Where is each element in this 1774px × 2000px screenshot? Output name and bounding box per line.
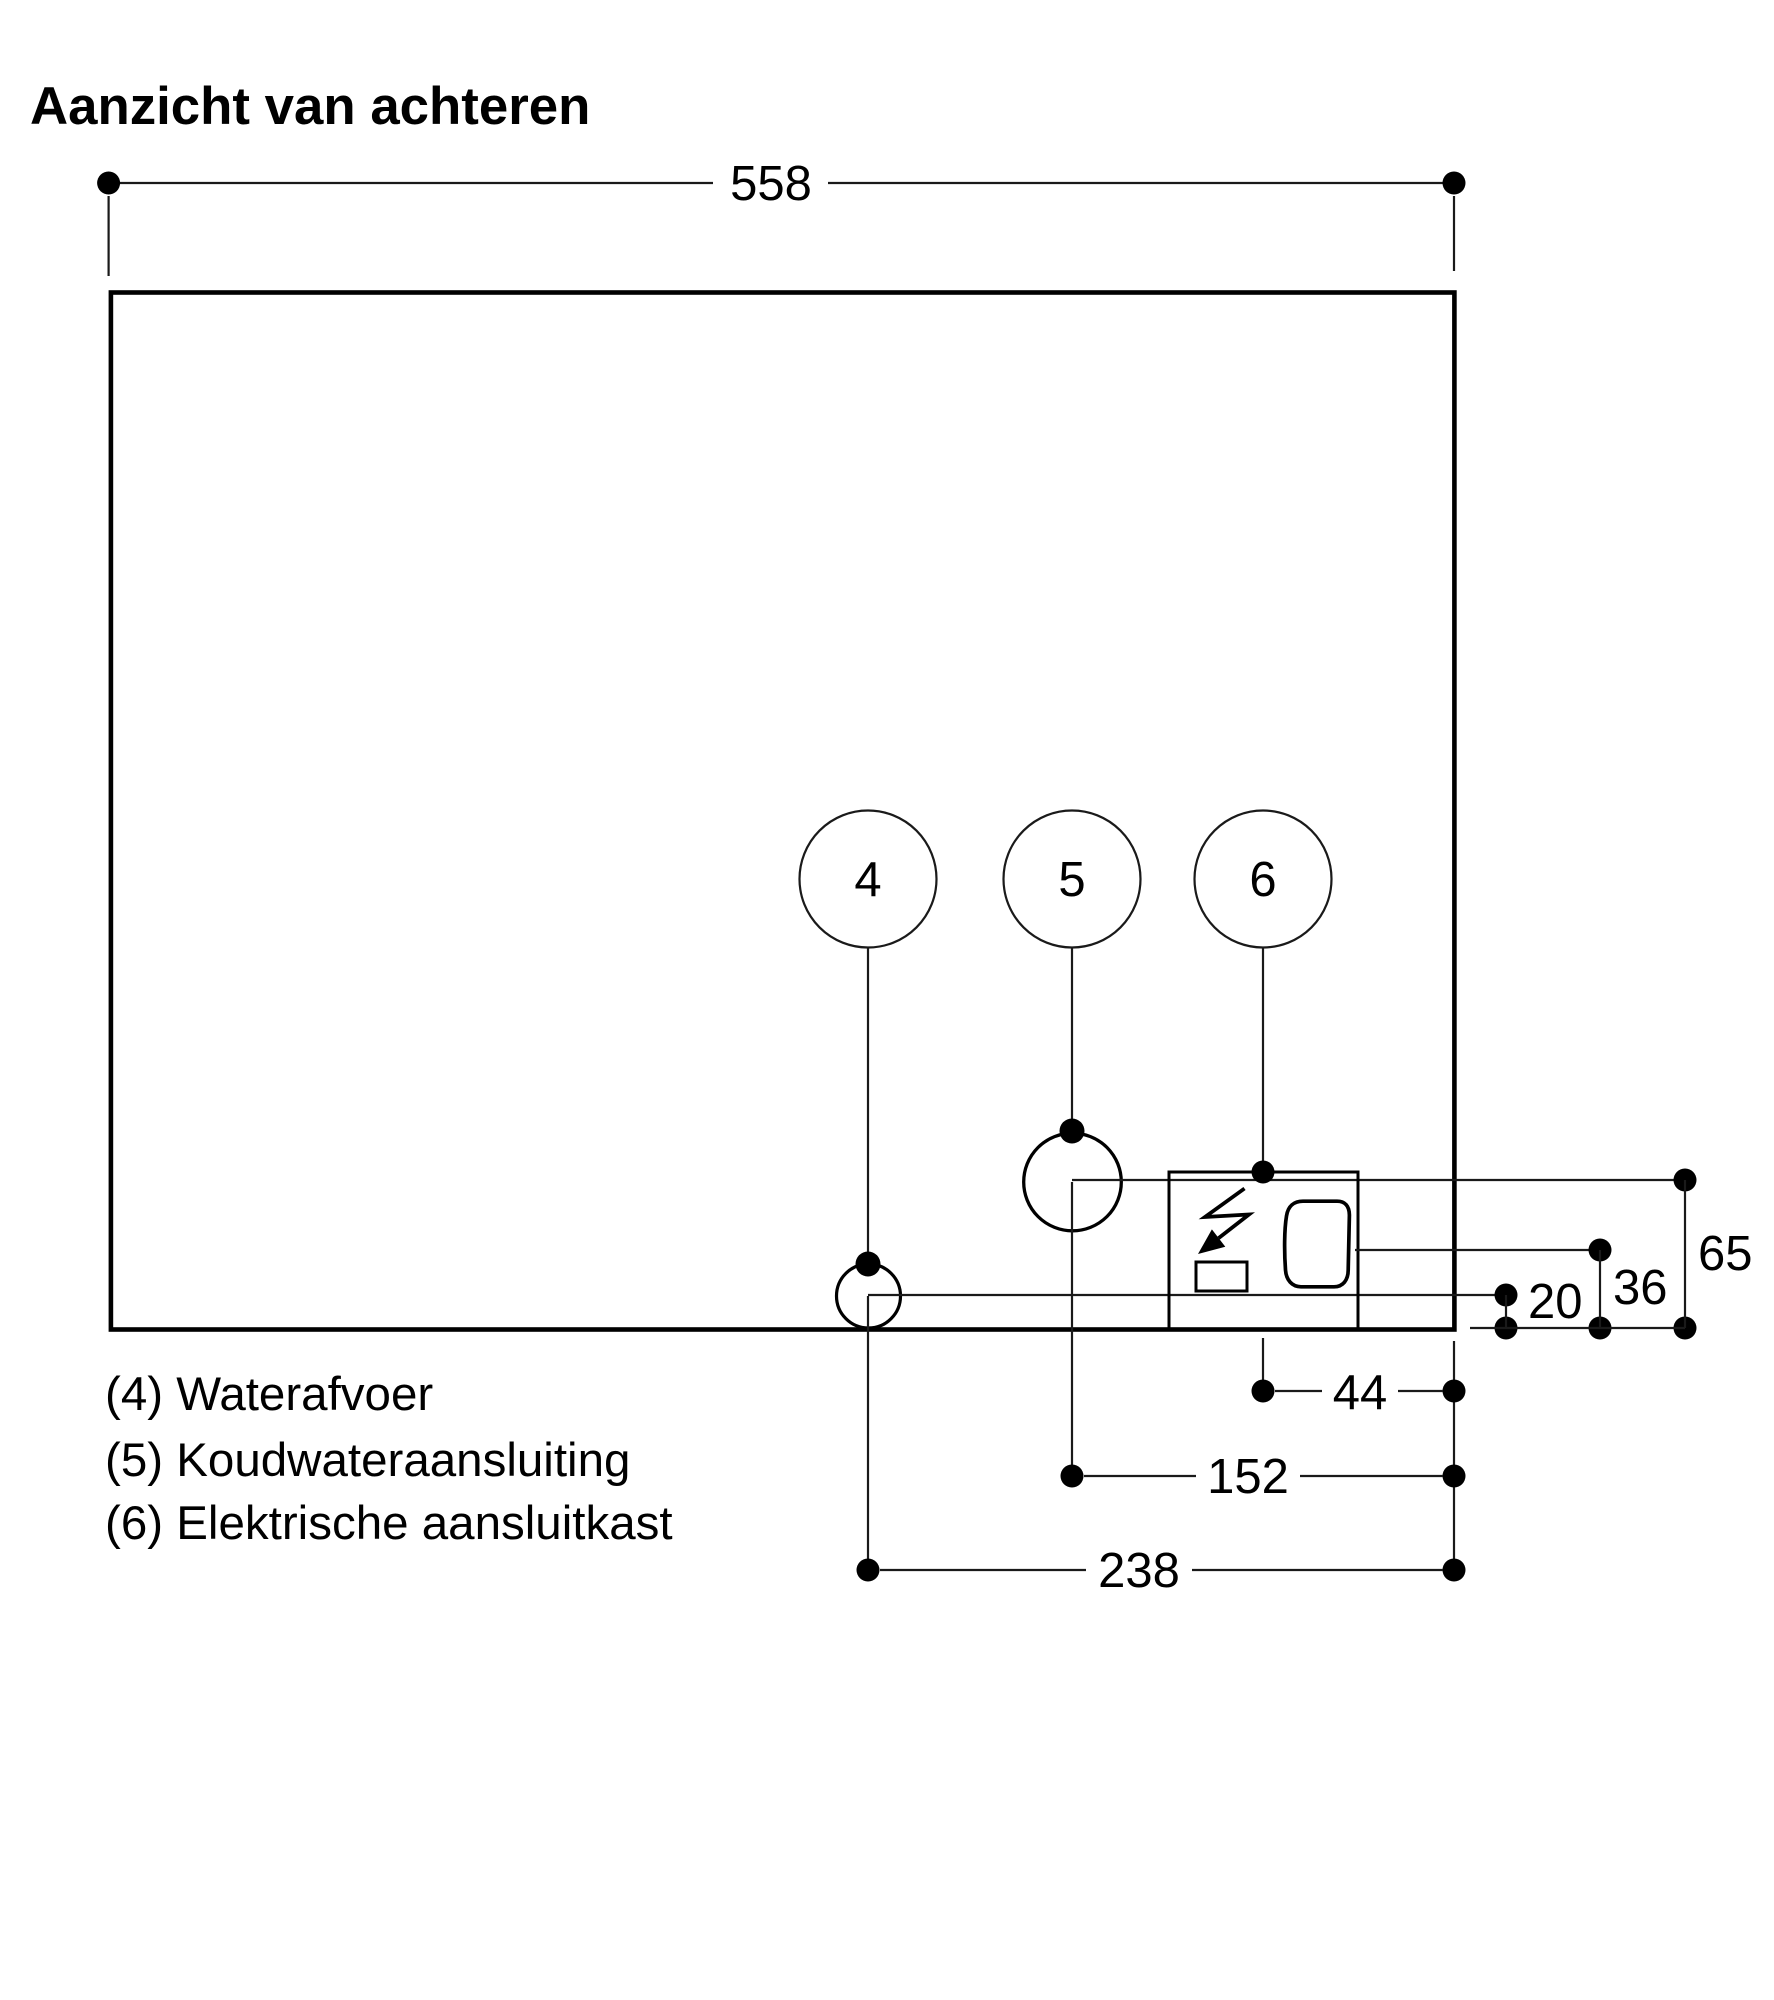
svg-text:558: 558 [730, 157, 812, 211]
svg-text:(4) Waterafvoer: (4) Waterafvoer [105, 1368, 433, 1421]
svg-text:44: 44 [1333, 1366, 1388, 1420]
svg-text:(5) Koudwateraansluiting: (5) Koudwateraansluiting [105, 1434, 630, 1487]
svg-text:152: 152 [1207, 1450, 1289, 1504]
svg-text:6: 6 [1249, 853, 1276, 907]
svg-text:65: 65 [1698, 1227, 1753, 1281]
svg-text:4: 4 [854, 853, 881, 907]
svg-text:20: 20 [1528, 1275, 1583, 1329]
svg-text:36: 36 [1613, 1261, 1668, 1315]
svg-text:Aanzicht van achteren: Aanzicht van achteren [30, 77, 590, 136]
svg-text:5: 5 [1058, 853, 1085, 907]
svg-text:238: 238 [1098, 1544, 1180, 1598]
svg-text:(6) Elektrische aansluitkast: (6) Elektrische aansluitkast [105, 1497, 673, 1550]
